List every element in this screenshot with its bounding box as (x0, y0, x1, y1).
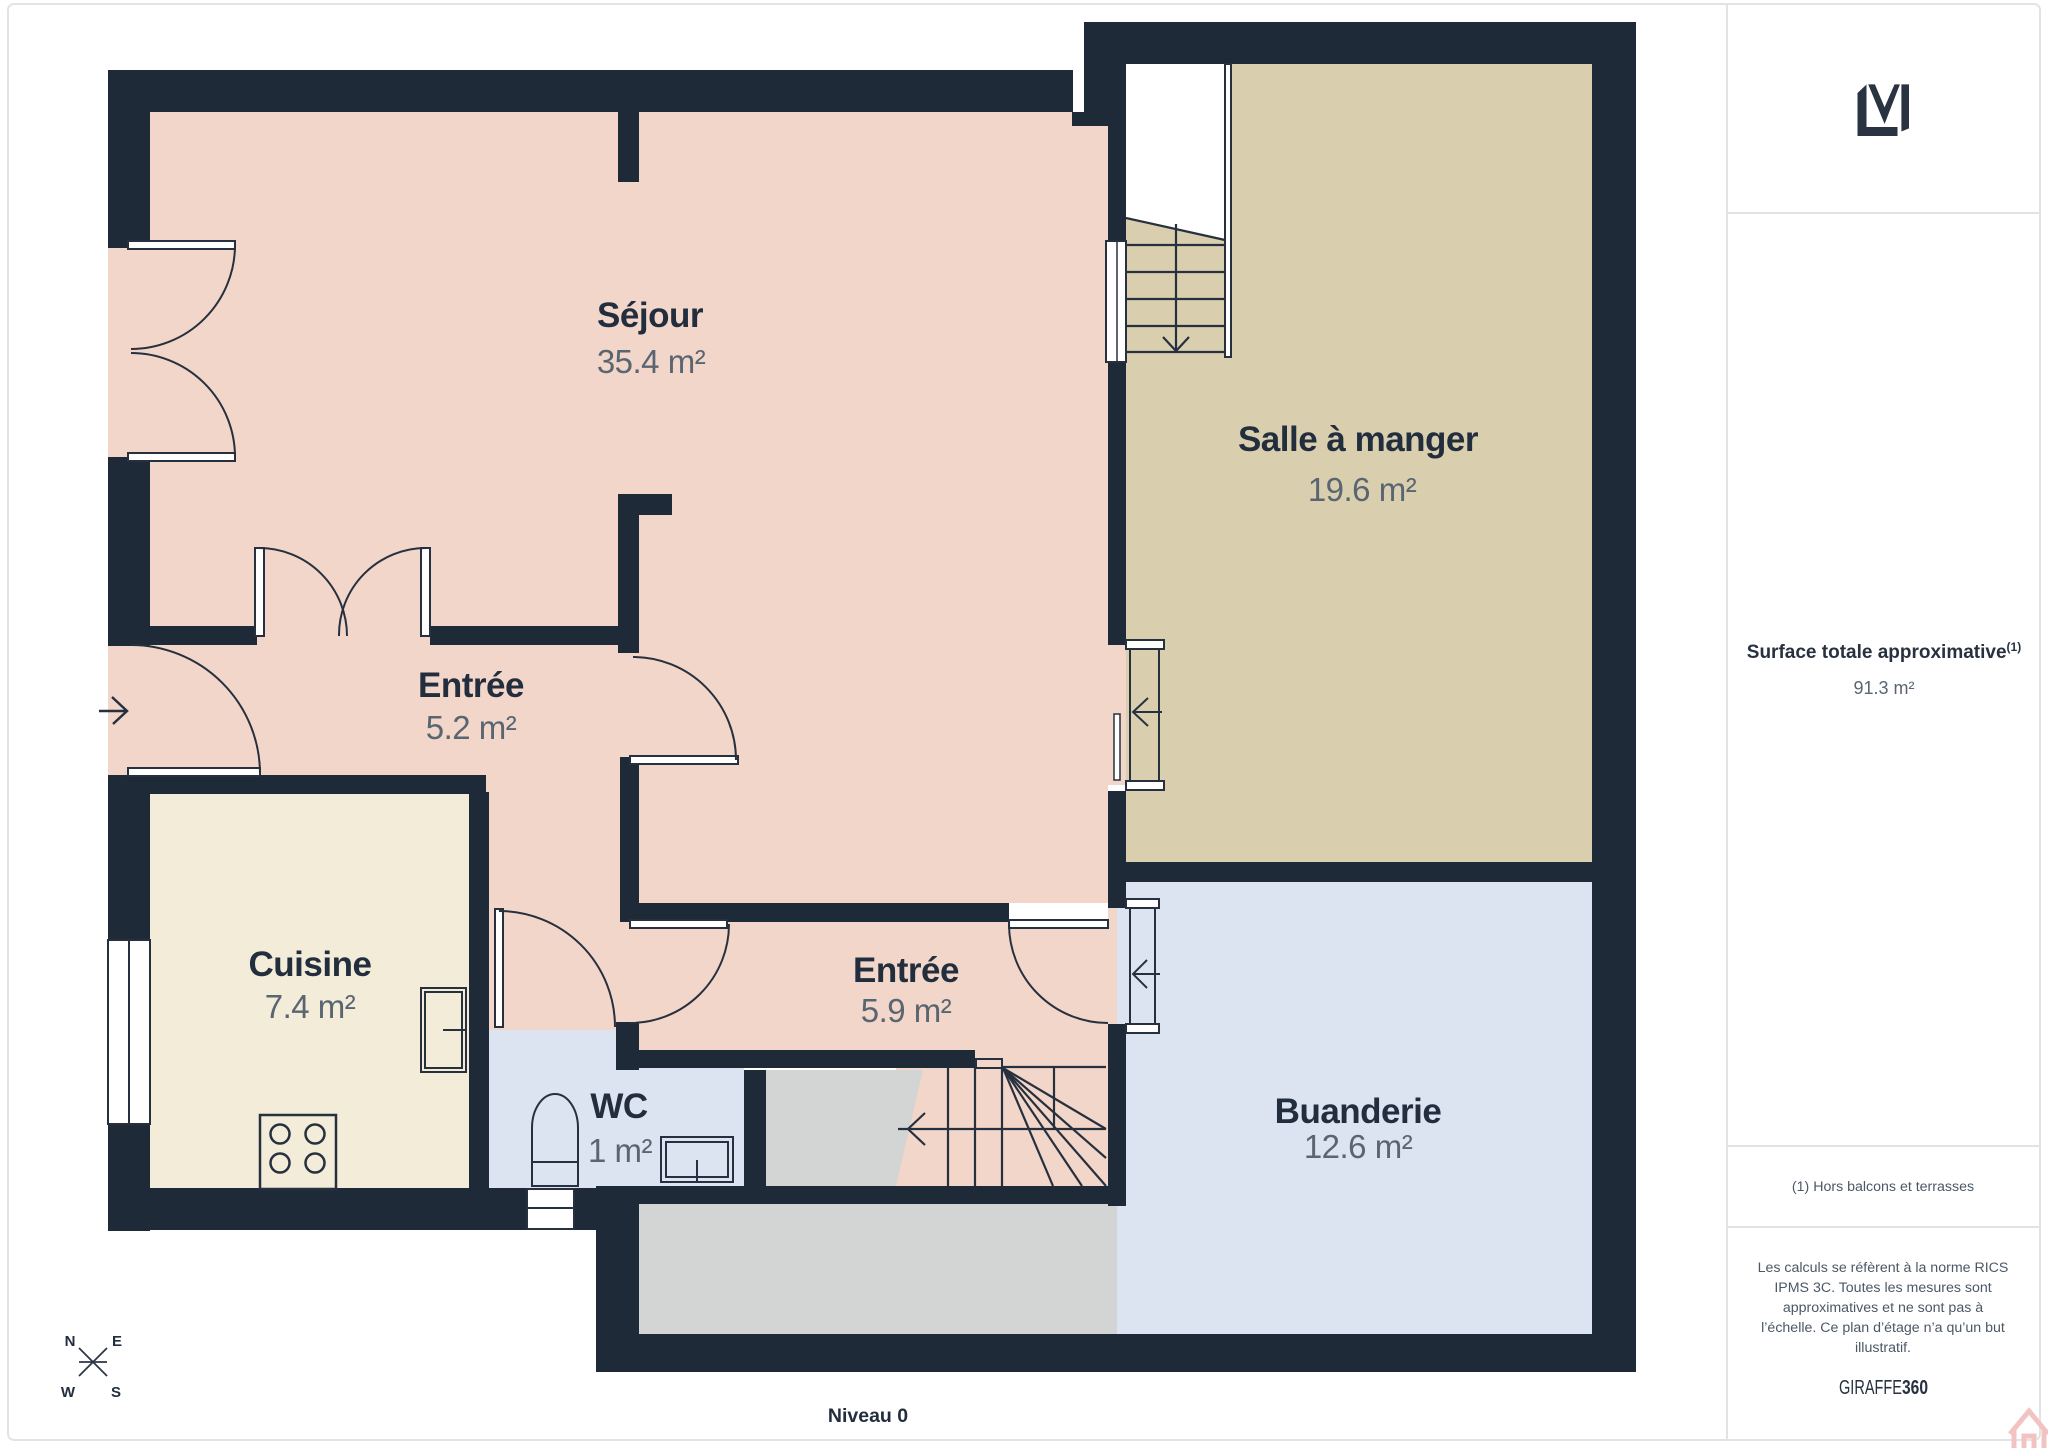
svg-text:illustratif.: illustratif. (1855, 1340, 1911, 1356)
svg-text:Entrée: Entrée (418, 666, 524, 705)
svg-text:1 m²: 1 m² (588, 1132, 653, 1169)
svg-text:7.4 m²: 7.4 m² (265, 988, 356, 1025)
svg-text:360: 360 (1902, 1377, 1928, 1399)
svg-text:Salle à manger: Salle à manger (1238, 420, 1479, 459)
svg-text:Buanderie: Buanderie (1275, 1092, 1442, 1131)
svg-text:91.3 m²: 91.3 m² (1853, 678, 1914, 698)
svg-text:N: N (65, 1333, 76, 1350)
svg-text:Surface totale approximative(1: Surface totale approximative(1) (1747, 640, 2021, 663)
svg-text:WC: WC (590, 1087, 648, 1126)
svg-text:19.6 m²: 19.6 m² (1308, 471, 1417, 508)
svg-text:Les calculs se réfèrent à la n: Les calculs se réfèrent à la norme RICS (1758, 1260, 2009, 1276)
svg-text:approximatives et ne sont pas: approximatives et ne sont pas à (1783, 1300, 1983, 1316)
svg-text:W: W (61, 1384, 76, 1401)
svg-text:(1) Hors balcons et terrasses: (1) Hors balcons et terrasses (1792, 1179, 1974, 1195)
svg-text:5.9 m²: 5.9 m² (861, 992, 952, 1029)
svg-text:5.2 m²: 5.2 m² (426, 709, 517, 746)
svg-text:Cuisine: Cuisine (249, 945, 372, 984)
svg-text:12.6 m²: 12.6 m² (1304, 1128, 1413, 1165)
svg-text:Niveau 0: Niveau 0 (828, 1405, 908, 1427)
svg-text:l’échelle. Ce plan d’étage n’a: l’échelle. Ce plan d’étage n’a qu’un but (1761, 1320, 2005, 1336)
svg-text:IPMS 3C. Toutes les mesures so: IPMS 3C. Toutes les mesures sont (1774, 1280, 1991, 1296)
svg-text:GIRAFFE: GIRAFFE (1839, 1377, 1902, 1399)
svg-text:Entrée: Entrée (853, 951, 959, 990)
svg-text:E: E (112, 1333, 122, 1350)
svg-text:S: S (111, 1384, 121, 1401)
svg-text:Séjour: Séjour (597, 296, 704, 335)
svg-text:35.4 m²: 35.4 m² (597, 343, 706, 380)
